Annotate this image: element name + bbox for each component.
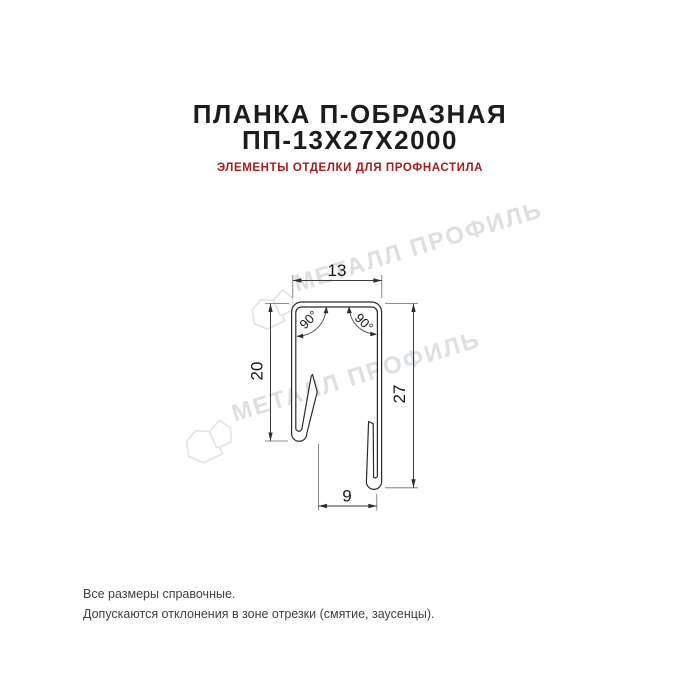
arrow-down-icon [411,479,415,488]
product-sheet-page: ПЛАНКА П-ОБРАЗНАЯПП-13Х27Х2000 ЭЛЕМЕНТЫ … [0,0,700,700]
dim-label-left-height: 20 [248,362,267,381]
angle-right-90: 90° [347,307,377,337]
dimension-right-height: 27 [385,304,418,488]
angle-label-right: 90° [352,310,377,335]
watermark-middle: МЕТАЛЛ ПРОФИЛЬ [177,326,491,466]
arrow-up-icon [268,304,272,313]
arrow-left-icon [319,504,328,508]
arrow-up-icon [411,304,415,313]
arrow-down-icon [268,433,272,442]
dim-label-bottom-width: 9 [342,487,351,506]
angle-left-90: 90° [296,307,328,339]
arrow-right-icon [373,278,382,282]
watermark-text: МЕТАЛЛ ПРОФИЛЬ [229,326,484,427]
footer-notes: Все размеры справочные. Допускаются откл… [83,584,435,624]
dim-label-right-height: 27 [390,385,409,404]
footer-note-line2: Допускаются отклонения в зоне отрезки (с… [83,604,435,624]
metall-profil-logo-icon [181,418,237,466]
arrow-right-icon [368,504,377,508]
watermark-text: МЕТАЛЛ ПРОФИЛЬ [291,196,546,297]
dim-label-top-width: 13 [328,261,347,280]
footer-note-line1: Все размеры справочные. [83,584,435,604]
watermark-top: МЕТАЛЛ ПРОФИЛЬ [243,196,552,332]
